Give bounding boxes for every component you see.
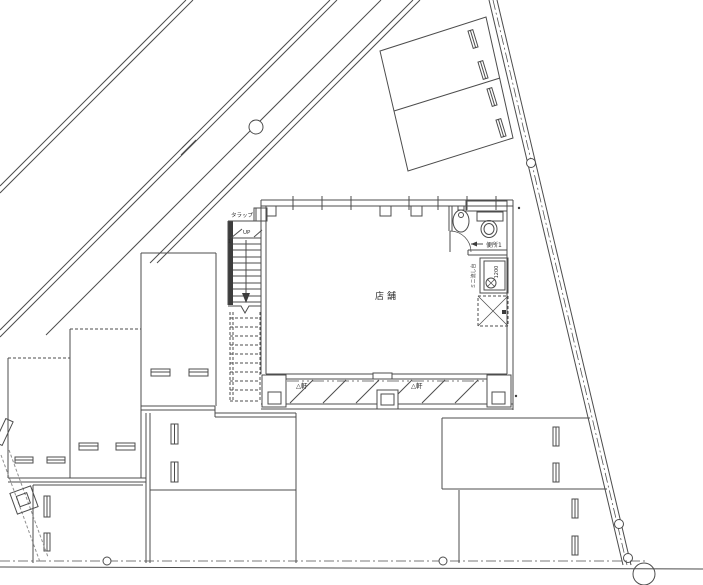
wheel-stop	[553, 427, 559, 446]
wheel-stop	[468, 30, 478, 49]
mini-kitchen: 1200 ミニ流し台	[470, 258, 508, 326]
parking-south	[33, 413, 296, 563]
label-shop: 店舗	[375, 290, 399, 302]
entry-threshold	[373, 373, 392, 379]
parking-west	[8, 253, 296, 563]
toilet-fixture	[477, 212, 503, 238]
stair-treads-upper	[233, 238, 261, 302]
wheel-stop	[572, 499, 578, 518]
wheel-stop	[496, 119, 506, 138]
stair-wall	[228, 221, 233, 305]
wheel-stop	[189, 369, 208, 376]
label-stair-up: UP	[243, 230, 251, 236]
porch-column	[377, 390, 398, 409]
wheel-stop	[116, 443, 135, 450]
wheel-stop	[478, 61, 488, 80]
parking-southeast	[442, 418, 607, 563]
boundary-east	[489, 0, 655, 585]
wheel-stop	[487, 88, 497, 107]
stair-treads-lower	[230, 312, 260, 401]
wheel-stop	[44, 496, 50, 517]
porch-column	[487, 375, 511, 407]
label-eave-right: △軒	[411, 382, 423, 390]
boundary-marker-circle	[103, 557, 111, 565]
boundary-marker-circle	[439, 557, 447, 565]
label-ladder: タラップ	[231, 211, 254, 219]
parking-northeast	[380, 17, 513, 171]
road-kink-mark	[181, 140, 196, 155]
wheel-stop	[44, 533, 50, 551]
boundary-marker-circle	[249, 120, 263, 134]
label-eave-left: △軒	[296, 382, 308, 390]
porch-column	[262, 375, 286, 407]
wheel-stop	[553, 463, 559, 482]
label-toilet: 便所1	[486, 241, 502, 249]
wheel-stop	[171, 424, 178, 444]
wheel-stop	[151, 369, 170, 376]
utility-pole	[0, 419, 13, 446]
door-swing-arc	[450, 231, 471, 252]
label-stair-number: 1	[228, 239, 231, 245]
wheel-stop	[572, 536, 578, 555]
entry-notch	[380, 206, 391, 216]
wheel-stop	[79, 443, 98, 450]
column	[411, 206, 422, 216]
wheel-stop	[15, 457, 33, 463]
road-northwest-lines	[0, 0, 420, 337]
boundary-marker-circle	[527, 159, 536, 168]
boundary-marker-circle	[615, 520, 624, 529]
site-plan-drawing: △軒 △軒 UP	[0, 0, 703, 585]
label-kitchen-unit: ミニ流し台	[470, 263, 477, 288]
utility-corner-southwest	[0, 419, 48, 562]
boundary-south	[0, 557, 703, 569]
floor-plan-canvas: △軒 △軒 UP	[0, 0, 703, 585]
wheel-stop	[171, 462, 178, 482]
hatch-opening-box	[478, 296, 508, 326]
boundary-corner-circle	[633, 563, 655, 585]
wheel-stop	[47, 457, 65, 463]
label-kitchen-width: 1200	[494, 266, 500, 279]
break-line	[228, 306, 261, 313]
toilet-room: 便所1	[449, 201, 507, 255]
door-arrow-head	[471, 242, 477, 247]
